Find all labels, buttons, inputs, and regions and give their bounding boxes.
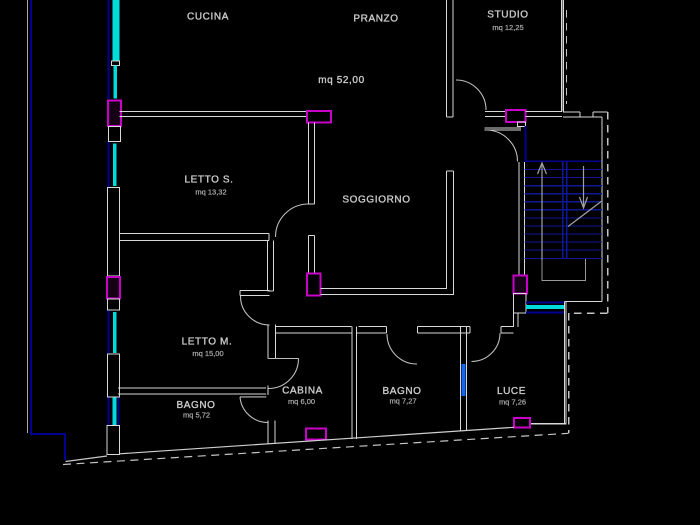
svg-text:LUCE: LUCE: [497, 386, 526, 397]
svg-text:LETTO M.: LETTO M.: [182, 337, 233, 348]
svg-text:CABINA: CABINA: [282, 386, 323, 397]
svg-text:mq 52,00: mq 52,00: [318, 75, 365, 86]
svg-text:mq 7,26: mq 7,26: [499, 398, 526, 407]
svg-text:LETTO S.: LETTO S.: [184, 175, 233, 186]
svg-text:BAGNO: BAGNO: [382, 386, 421, 397]
svg-text:mq 6,00: mq 6,00: [288, 397, 315, 406]
svg-text:CUCINA: CUCINA: [187, 12, 229, 23]
svg-text:mq 7,27: mq 7,27: [389, 396, 416, 405]
svg-text:STUDIO: STUDIO: [487, 10, 528, 21]
svg-text:SOGGIORNO: SOGGIORNO: [342, 195, 410, 206]
svg-text:BAGNO: BAGNO: [176, 400, 215, 411]
svg-text:mq 15,00: mq 15,00: [192, 349, 223, 358]
svg-text:mq 13,32: mq 13,32: [195, 188, 226, 197]
svg-text:mq 12,25: mq 12,25: [492, 23, 523, 32]
svg-text:PRANZO: PRANZO: [353, 14, 398, 25]
svg-text:mq 5,72: mq 5,72: [183, 411, 210, 420]
